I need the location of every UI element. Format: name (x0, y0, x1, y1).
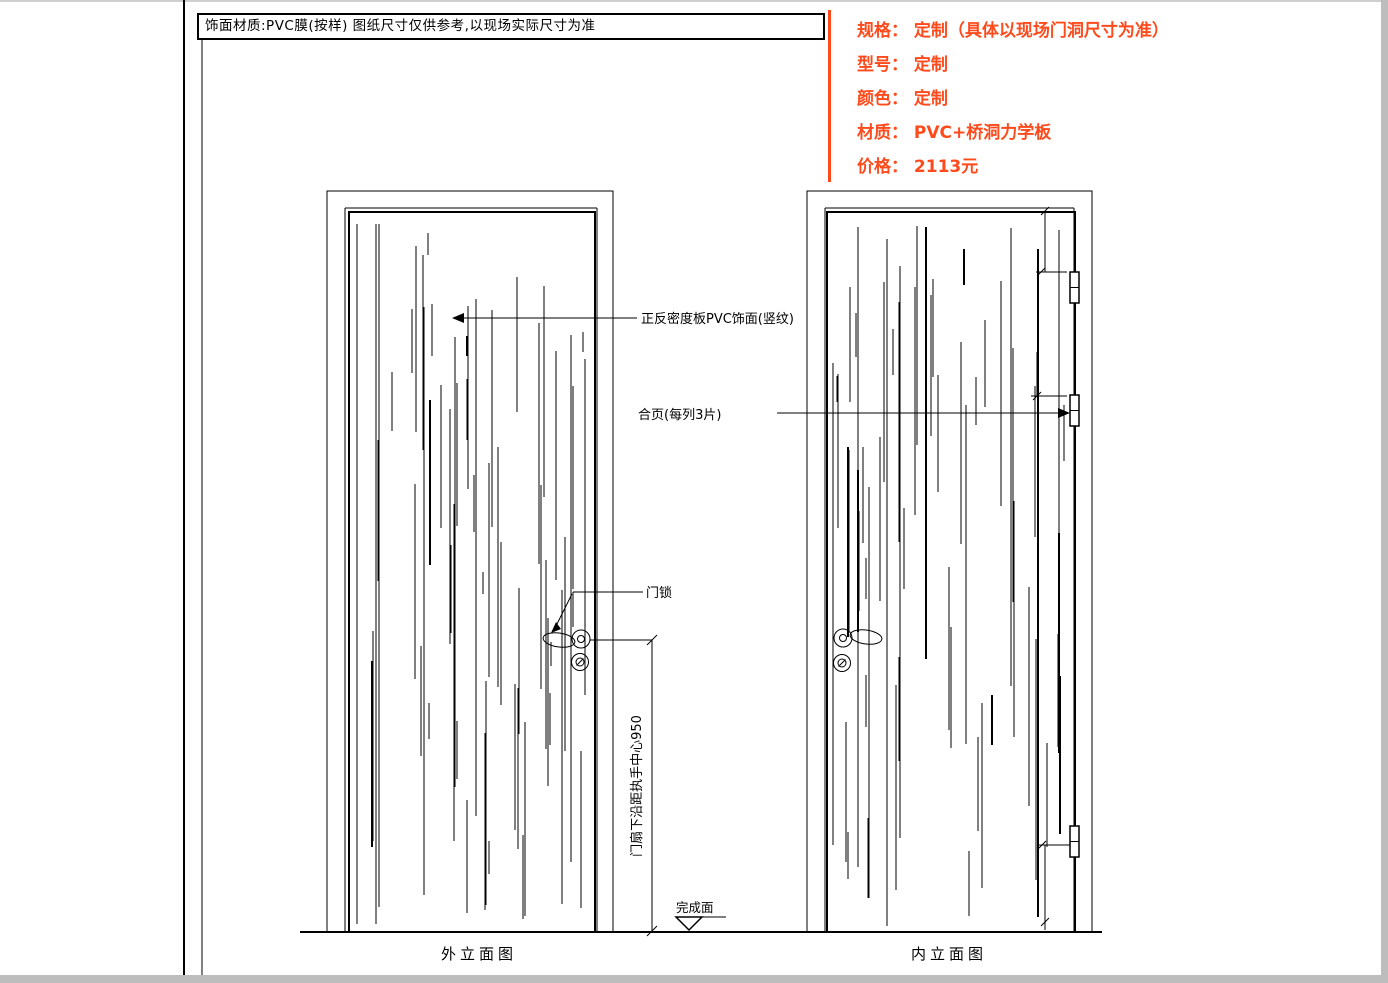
dimension-handle-height-text: 门扇下沿距执手中心950 (629, 715, 645, 857)
left-door-wood-grain (357, 224, 585, 924)
door-elevation-drawing: 正反密度板PVC饰面(竖纹) 合页(每列3片) 门锁 门扇下沿距执手中心950 … (0, 0, 1388, 983)
right-door-handle-rose (834, 629, 852, 647)
left-door-elevation (327, 191, 613, 932)
caption-exterior-elevation: 外立面图 (441, 945, 517, 963)
right-door-elevation (807, 191, 1092, 932)
right-door-handle-spindle (840, 635, 847, 642)
left-door-leaf (349, 212, 595, 932)
finish-level-text: 完成面 (676, 900, 714, 915)
right-door-wood-grain (833, 226, 1064, 926)
annotation-lock-text: 门锁 (646, 585, 672, 601)
annotation-hinge-text: 合页(每列3片) (638, 407, 721, 423)
left-door-frame-outer (327, 191, 613, 932)
arrow-down-left-icon (551, 622, 561, 633)
left-door-keyhole-slot (577, 659, 584, 666)
right-door-keyhole-slot (839, 660, 846, 667)
hinge-dimension-marks (1031, 207, 1070, 930)
left-door-handle-spindle (578, 636, 585, 643)
sheet-frame (184, 0, 202, 975)
left-door-handle-rose (572, 630, 590, 648)
left-door-handle (542, 630, 590, 671)
dimension-handle-height: 门扇下沿距执手中心950 (590, 635, 657, 936)
annotation-lock: 门锁 (551, 585, 672, 633)
annotation-hinge: 合页(每列3片) (638, 407, 1070, 423)
arrow-left-icon (452, 313, 464, 323)
caption-interior-elevation: 内立面图 (911, 945, 987, 963)
annotation-surface: 正反密度板PVC饰面(竖纹) (452, 311, 794, 327)
annotation-lock-leader-diag (555, 594, 572, 628)
finish-level-marker: 完成面 (676, 900, 726, 930)
annotation-surface-text: 正反密度板PVC饰面(竖纹) (641, 311, 794, 327)
level-triangle-icon (676, 917, 702, 930)
right-door-lever (849, 628, 883, 646)
